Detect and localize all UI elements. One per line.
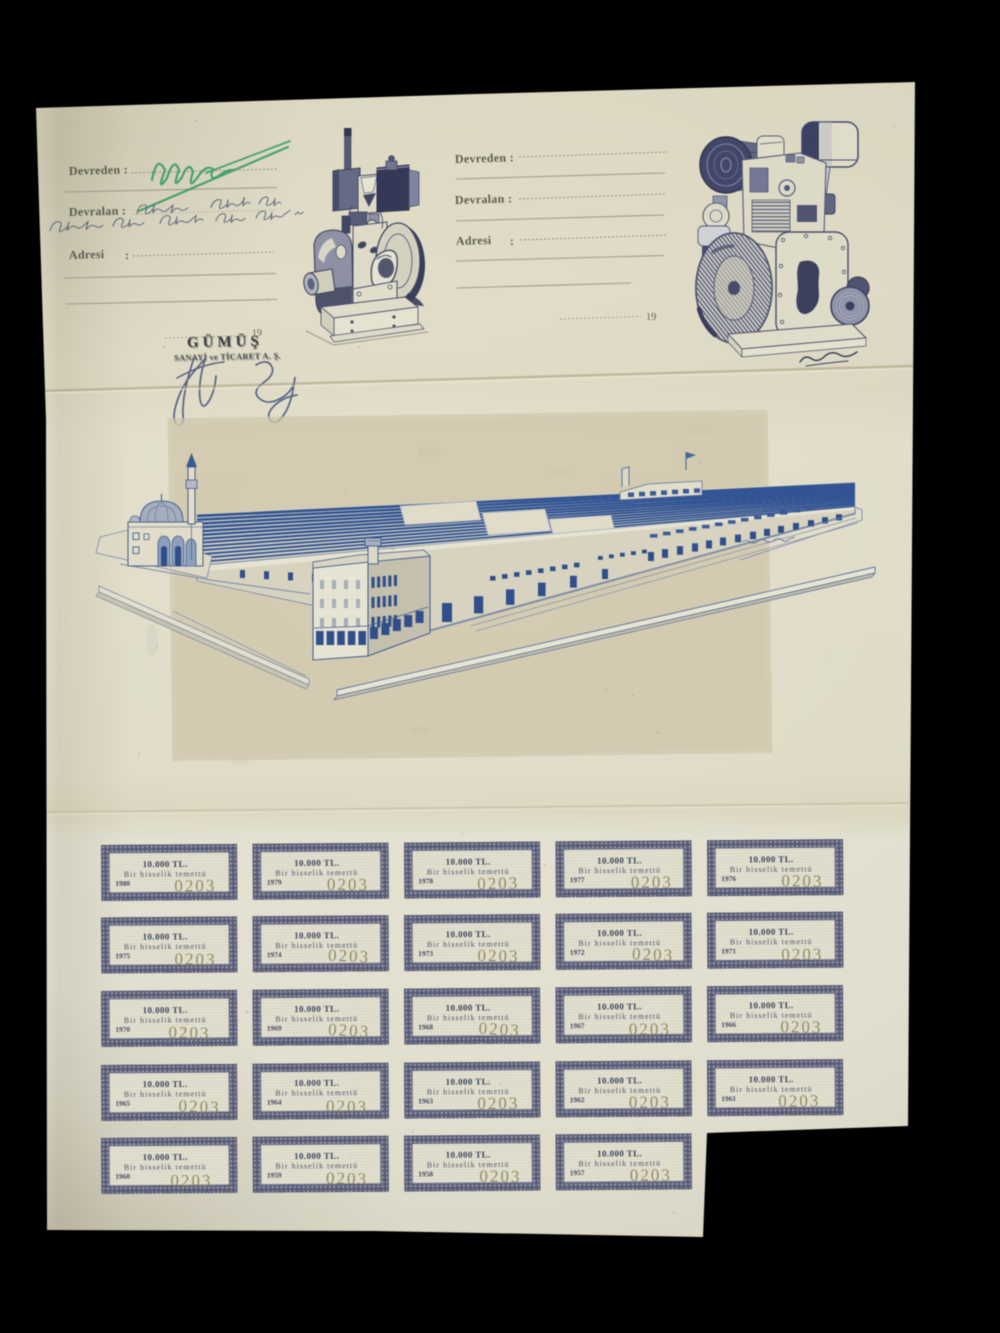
svg-text:1972: 1972 xyxy=(570,948,585,957)
svg-text:1977: 1977 xyxy=(570,875,585,884)
svg-text:0203: 0203 xyxy=(326,1097,368,1117)
svg-text:0203: 0203 xyxy=(631,873,673,892)
svg-text:1964: 1964 xyxy=(267,1098,282,1107)
svg-text:Adresi: Adresi xyxy=(69,247,105,262)
svg-text::: : xyxy=(125,248,130,262)
svg-text:0203: 0203 xyxy=(328,1020,371,1042)
svg-text:0203: 0203 xyxy=(178,1096,221,1117)
svg-text:0203: 0203 xyxy=(477,873,519,893)
svg-text:1958: 1958 xyxy=(418,1169,433,1178)
svg-text:1960: 1960 xyxy=(115,1172,130,1181)
svg-text:1963: 1963 xyxy=(418,1096,433,1105)
svg-text:19: 19 xyxy=(646,312,657,323)
svg-text:1971: 1971 xyxy=(721,947,736,956)
svg-text:0203: 0203 xyxy=(174,876,216,895)
svg-text:Adresi: Adresi xyxy=(456,233,492,248)
svg-text:0203: 0203 xyxy=(630,1166,672,1185)
svg-text:1974: 1974 xyxy=(267,950,282,959)
svg-text:GÜMÜŞ: GÜMÜŞ xyxy=(188,334,264,353)
svg-text:1959: 1959 xyxy=(267,1171,282,1180)
svg-text:0203: 0203 xyxy=(477,1094,519,1113)
svg-text:0203: 0203 xyxy=(477,946,519,966)
svg-text:0203: 0203 xyxy=(170,1171,212,1190)
svg-text:0203: 0203 xyxy=(632,944,675,965)
svg-text::: : xyxy=(510,234,515,248)
svg-text:1973: 1973 xyxy=(418,949,433,958)
svg-text:1966: 1966 xyxy=(721,1020,736,1029)
svg-text:Devreden :: Devreden : xyxy=(455,150,514,166)
svg-text:1976: 1976 xyxy=(721,874,736,883)
svg-text:0203: 0203 xyxy=(168,1023,210,1043)
svg-text:Devralan :: Devralan : xyxy=(455,191,513,207)
svg-text:0203: 0203 xyxy=(629,1020,671,1039)
svg-text:1980: 1980 xyxy=(115,879,130,888)
svg-text:1967: 1967 xyxy=(570,1021,585,1030)
svg-text:1970: 1970 xyxy=(115,1025,130,1034)
svg-text:0203: 0203 xyxy=(328,946,371,967)
svg-text:0203: 0203 xyxy=(629,1093,671,1112)
svg-text:0203: 0203 xyxy=(326,1169,368,1189)
svg-text:Devralan :: Devralan : xyxy=(69,203,127,219)
svg-text:1979: 1979 xyxy=(267,878,282,887)
svg-text:1965: 1965 xyxy=(115,1099,130,1108)
svg-text:1969: 1969 xyxy=(267,1024,282,1033)
svg-text:1968: 1968 xyxy=(418,1022,433,1031)
svg-text:1961: 1961 xyxy=(721,1094,736,1103)
svg-text:1962: 1962 xyxy=(570,1095,585,1104)
svg-text:0203: 0203 xyxy=(781,945,823,964)
svg-text:0203: 0203 xyxy=(778,1091,820,1110)
svg-text:1975: 1975 xyxy=(115,951,130,960)
svg-text:0203: 0203 xyxy=(327,875,369,894)
svg-text:1957: 1957 xyxy=(570,1168,585,1177)
svg-text:Devreden :: Devreden : xyxy=(69,162,128,178)
svg-text:0203: 0203 xyxy=(781,871,823,890)
svg-text:1978: 1978 xyxy=(418,876,433,885)
svg-text:0203: 0203 xyxy=(479,1167,521,1186)
svg-text:0203: 0203 xyxy=(174,949,216,969)
svg-text:0203: 0203 xyxy=(478,1019,521,1041)
